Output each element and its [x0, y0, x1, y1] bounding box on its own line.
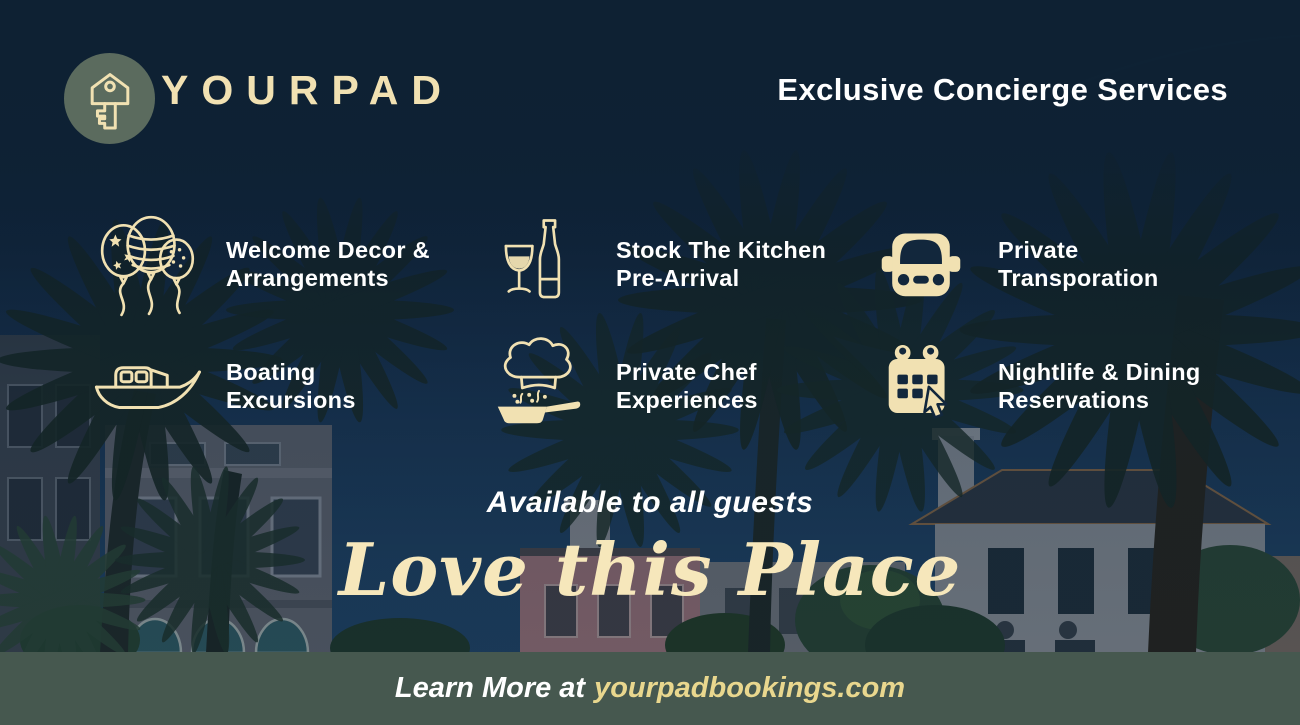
service-stock-kitchen: Stock The KitchenPre-Arrival [480, 203, 862, 325]
service-boating: BoatingExcursions [90, 325, 480, 447]
script-tagline: Love this Place [0, 527, 1300, 612]
service-label: Welcome Decor &Arrangements [226, 236, 430, 292]
wine-bottle-glass-icon [480, 205, 598, 323]
boat-icon [90, 327, 208, 445]
availability-subtitle: Available to all guests [0, 486, 1300, 520]
service-label: BoatingExcursions [226, 358, 356, 414]
service-nightlife-dining: Nightlife & DiningReservations [862, 325, 1230, 447]
service-welcome-decor: Welcome Decor &Arrangements [90, 203, 480, 325]
header-tagline: Exclusive Concierge Services [777, 72, 1228, 108]
chef-hat-pan-icon [480, 327, 598, 445]
services-grid: Welcome Decor &Arrangements [90, 203, 1230, 447]
service-label: Private ChefExperiences [616, 358, 758, 414]
car-icon [862, 205, 980, 323]
calendar-cursor-icon [862, 327, 980, 445]
service-private-transporation: PrivateTransporation [862, 203, 1230, 325]
balloons-icon [90, 205, 208, 323]
service-label: Stock The KitchenPre-Arrival [616, 236, 826, 292]
footer-bar: Learn More at yourpadbookings.com [0, 652, 1300, 725]
service-label: PrivateTransporation [998, 236, 1159, 292]
footer-prefix: Learn More at [395, 672, 585, 705]
footer-url[interactable]: yourpadbookings.com [594, 672, 905, 705]
flyer: YOURPAD Exclusive Concierge Services [0, 0, 1300, 725]
key-icon [77, 66, 143, 132]
service-private-chef: Private ChefExperiences [480, 325, 862, 447]
service-label: Nightlife & DiningReservations [998, 358, 1201, 414]
brand-logo [64, 53, 155, 144]
brand-name: YOURPAD [161, 67, 454, 114]
